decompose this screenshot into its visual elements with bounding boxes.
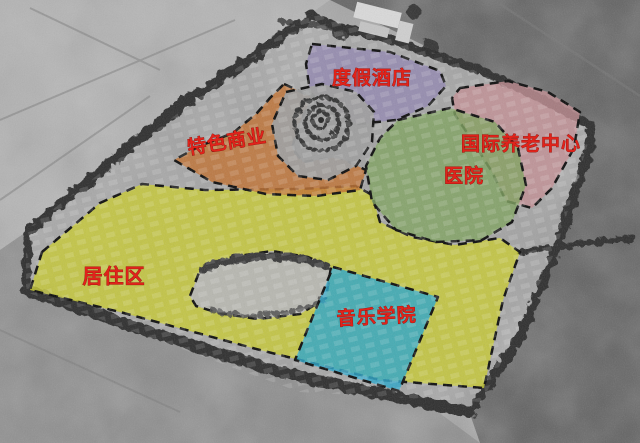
plan-canvas: 度假酒店 特色商业 国际养老中心 医院 居住区 音乐学院 bbox=[0, 0, 640, 443]
label-hospital: 医院 bbox=[444, 164, 484, 187]
label-resort-hotel: 度假酒店 bbox=[332, 66, 412, 89]
aerial-master-plan: 度假酒店 特色商业 国际养老中心 医院 居住区 音乐学院 bbox=[0, 0, 640, 443]
photo-grain bbox=[0, 0, 640, 443]
label-residential: 居住区 bbox=[83, 264, 146, 288]
label-elderly-care-center: 国际养老中心 bbox=[461, 132, 581, 155]
